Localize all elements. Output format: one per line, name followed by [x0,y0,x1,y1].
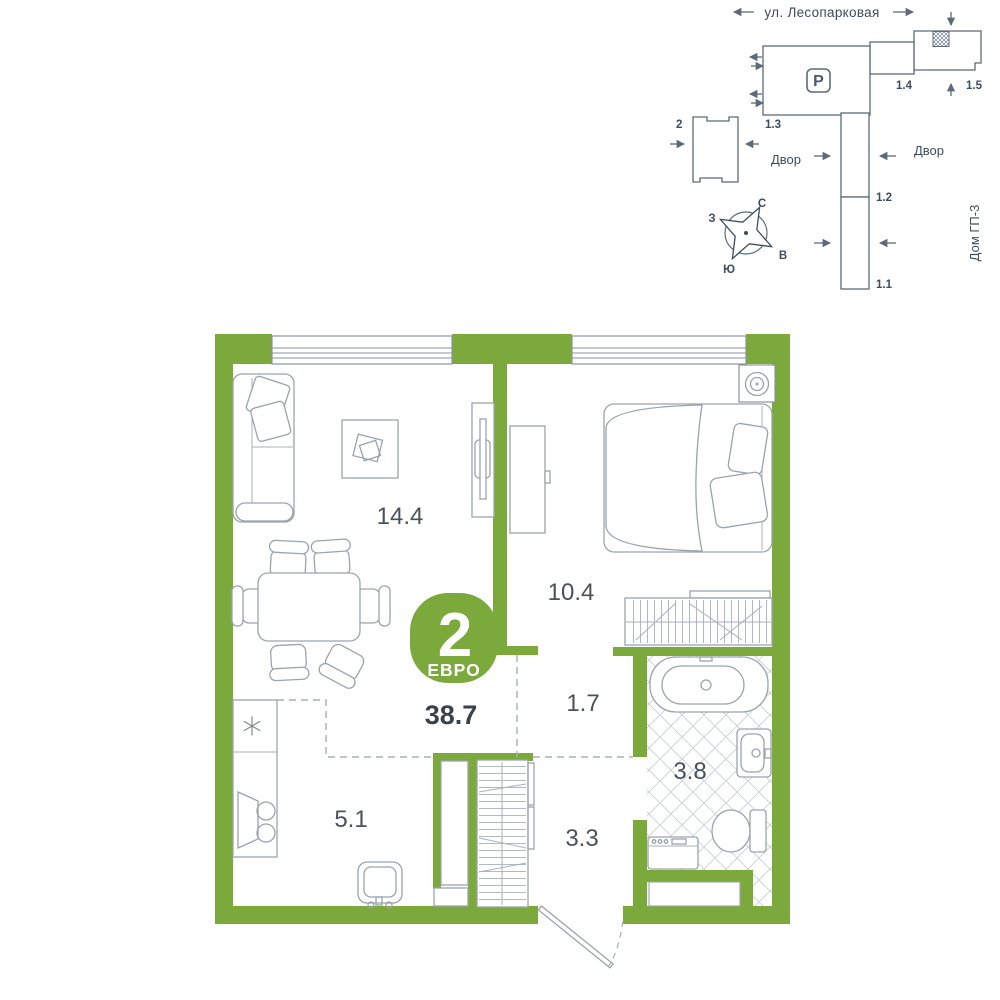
building-1-2-label: 1.2 [876,192,892,204]
bathroom-area-label: 3.8 [673,758,706,785]
pillow [727,423,768,476]
current-building-marker [933,32,949,47]
building-1-4 [870,42,914,74]
floor-plan-page: ул. Лесопарковая 1.5 1.4 Р 1.3 1.2 1.1 2 [0,0,1000,1000]
site-plan: ул. Лесопарковая 1.5 1.4 Р 1.3 1.2 1.1 2 [670,5,983,291]
total-area-label: 38.7 [425,700,478,730]
yard-left-label: Двор [771,152,801,167]
window [272,336,452,364]
street-label: ул. Лесопарковая [764,5,879,20]
pillow [709,471,768,529]
bathroom-tile-floor [753,870,772,906]
hallway-area-label: 3.3 [565,825,598,852]
building-1-3-label: 1.3 [765,119,781,131]
compass-south-label: Ю [723,264,735,276]
bedroom-wardrobe [625,591,772,645]
plan-canvas: ул. Лесопарковая 1.5 1.4 Р 1.3 1.2 1.1 2 [0,0,1000,1000]
tv-unit [472,403,494,517]
hall-closet [441,761,468,885]
building-2-label: 2 [676,119,682,131]
building-1-1 [841,197,869,289]
kitchen-sink [358,862,402,908]
duct-shaft [649,882,740,906]
living-area-label: 14.4 [377,503,424,530]
kitchen-zone-boundary [277,700,433,757]
apartment-plan: 14.4 10.4 1.7 3.8 3.3 5.1 2 ЕВРО 38.7 [215,334,790,968]
washing-machine [648,837,698,869]
compass-icon: С З В Ю [707,194,787,276]
building-1-4-label: 1.4 [896,80,913,92]
coffee-table [342,420,398,478]
badge-type-label: ЕВРО [427,660,480,680]
building-1-1-label: 1.1 [876,279,893,291]
kitchen-unit [233,700,402,908]
building-1-2 [841,113,869,197]
toilet [712,810,766,852]
compass-west-label: З [708,213,715,225]
dining-set [232,539,390,691]
bedroom-area-label: 10.4 [548,579,595,606]
ceiling-light-icon [739,365,775,402]
building-1-5-label: 1.5 [966,80,983,92]
dining-table [258,573,360,641]
kitchen-area-label: 5.1 [334,806,367,833]
yard-right-label: Двор [914,143,944,158]
compass-east-label: В [779,250,787,262]
door-swing-arc [608,921,623,967]
hall-niche [434,888,468,906]
corridor-area-label: 1.7 [566,690,599,717]
compass-north-label: С [758,198,766,210]
bathtub [650,657,768,712]
sofa [233,374,294,522]
bathroom-sink [737,729,771,777]
entrance-door [538,906,623,968]
apartment-badge: 2 ЕВРО [410,593,498,683]
house-label: Дом ГП-3 [967,205,982,262]
building-2 [693,117,738,182]
hall-wardrobe [477,760,534,907]
window [572,336,746,364]
bed [604,404,772,552]
bedroom-dresser [510,426,550,533]
parking-label: Р [813,73,824,90]
